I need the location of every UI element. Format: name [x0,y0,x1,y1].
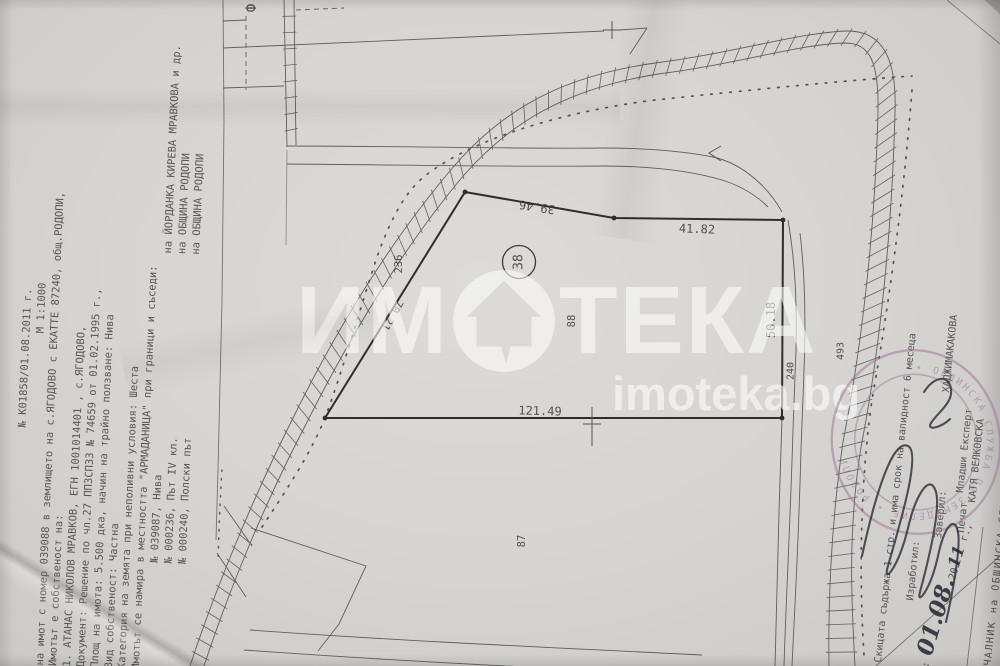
approver-signature [924,379,951,428]
stamp-ring-text: • ОБЩИНСКА СЛУЖБА ПО ЗЕМЕДЕЛИЕ • РОДОПИ [838,363,995,521]
stamp-and-signatures: • ОБЩИНСКА СЛУЖБА ПО ЗЕМЕДЕЛИЕ • РОДОПИ [0,0,1000,666]
svg-text:• ОБЩИНСКА СЛУЖБА ПО ЗЕМЕДЕЛИЕ: • ОБЩИНСКА СЛУЖБА ПО ЗЕМЕДЕЛИЕ • РОДОПИ [838,363,995,521]
round-official-stamp: • ОБЩИНСКА СЛУЖБА ПО ЗЕМЕДЕЛИЕ • РОДОПИ [817,337,1000,547]
handwritten-signature [862,379,959,622]
photographed-cadastral-sketch: № К01858/01.08.2011 г. М 1:1000 на имот … [0,0,1000,666]
